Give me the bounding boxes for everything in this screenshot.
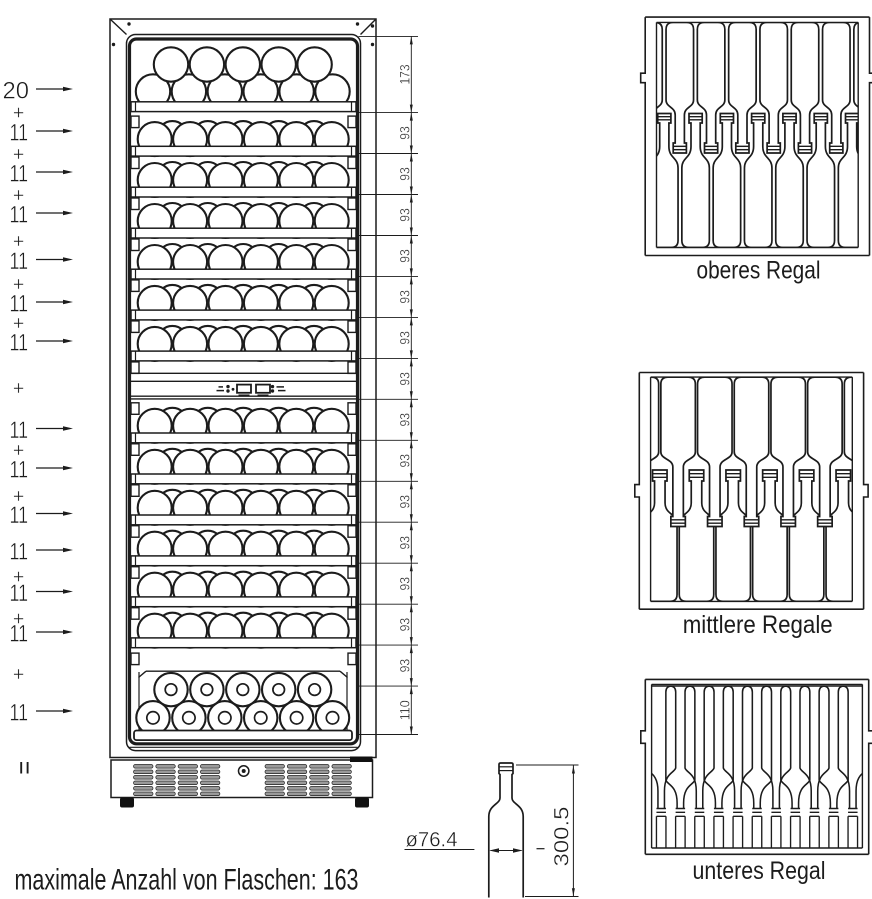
svg-text:93: 93 [397,126,413,140]
svg-text:93: 93 [397,167,413,181]
svg-text:11: 11 [10,202,29,229]
svg-text:ø76.4: ø76.4 [406,829,458,852]
svg-text:93: 93 [397,208,413,222]
svg-text:110: 110 [397,700,413,720]
svg-text:93: 93 [397,372,413,386]
svg-text:93: 93 [397,659,413,673]
svg-text:11: 11 [10,161,29,188]
svg-text:93: 93 [397,290,413,304]
svg-text:93: 93 [397,413,413,427]
svg-text:11: 11 [10,120,29,147]
svg-text:11: 11 [10,457,29,484]
svg-text:93: 93 [397,495,413,509]
svg-text:93: 93 [397,536,413,550]
svg-text:11: 11 [10,539,29,566]
svg-text:oberes Regal: oberes Regal [697,257,821,285]
svg-text:11: 11 [10,621,29,648]
svg-text:93: 93 [397,249,413,263]
svg-text:+: + [13,378,25,400]
svg-text:maximale Anzahl von Flaschen:: maximale Anzahl von Flaschen: 163 [15,864,359,897]
svg-text:11: 11 [10,580,29,607]
svg-text:11: 11 [10,248,29,275]
svg-text:93: 93 [397,577,413,591]
svg-text:mittlere Regale: mittlere Regale [683,611,833,639]
svg-text:+: + [13,664,25,686]
svg-text:unteres Regal: unteres Regal [693,857,826,885]
svg-text:11: 11 [10,330,29,357]
svg-text:93: 93 [397,331,413,345]
svg-text:300.5: 300.5 [551,807,574,867]
svg-text:173: 173 [397,64,413,84]
svg-text:93: 93 [397,618,413,632]
svg-text:93: 93 [397,454,413,468]
svg-text:11: 11 [10,700,29,727]
svg-text:20: 20 [3,78,30,105]
svg-text:11: 11 [10,502,29,529]
